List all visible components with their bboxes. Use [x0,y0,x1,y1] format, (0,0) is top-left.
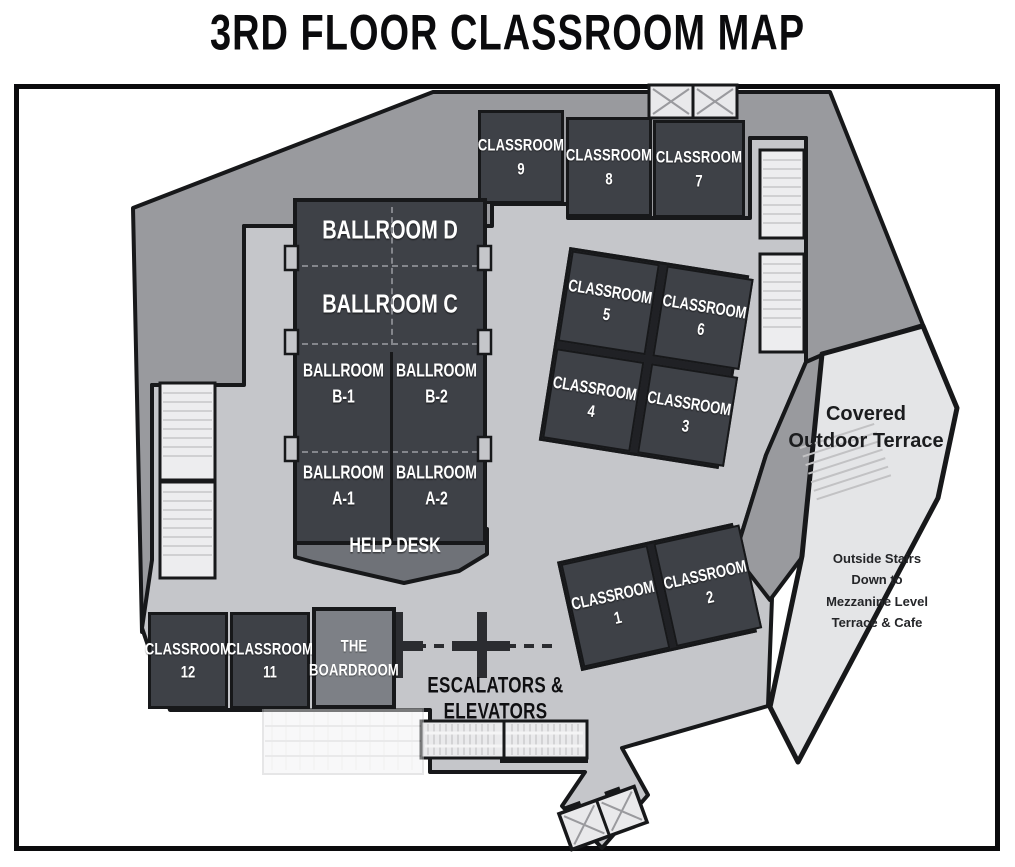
room-label: Boardroom [309,661,399,679]
outside-stairs-line2: Down to [793,569,961,590]
room-number: 1 [612,607,623,628]
ballroom-stack: Ballroom D Ballroom C Ballroom B-1 Ballr… [293,198,487,545]
room-classroom-12: Classroom 12 [148,612,228,709]
room-ballroom-a1: Ballroom A-1 [297,464,390,506]
room-number: 9 [517,159,524,179]
room-classroom-1: Classroom 1 [561,545,670,668]
room-number: A-2 [390,488,483,509]
room-label: Ballroom [297,462,390,483]
room-label: Classroom [646,387,733,419]
room-number: 11 [263,662,277,682]
room-label: Classroom [227,640,313,658]
room-number: 8 [605,169,612,189]
page-title: 3rd Floor Classroom Map [0,6,1015,49]
room-label: Ballroom [297,360,390,381]
room-label: Classroom [145,640,231,658]
help-desk-label: Help Desk [335,535,455,558]
room-classroom-6: Classroom 6 [652,265,754,369]
ballroom-divider [302,265,478,267]
room-label: Classroom [661,290,748,322]
outside-stairs-line1: Outside Stairs [793,548,961,569]
room-classroom-9: Classroom 9 [478,110,564,204]
ballroom-divider [302,343,478,345]
room-classroom-11: Classroom 11 [230,612,310,709]
room-number: 4 [586,401,596,421]
escalators-elevators-label: Escalators & Elevators [393,673,598,725]
elevator-north-icon [649,85,737,118]
page-title-text: 3rd Floor Classroom Map [210,6,805,63]
room-classroom-5: Classroom 5 [558,250,660,354]
room-number: 6 [696,319,706,339]
room-number: A-1 [297,488,390,509]
room-ballroom-b1: Ballroom B-1 [297,362,390,404]
room-boardroom: The Boardroom [312,607,396,709]
room-number: 7 [695,171,702,191]
room-number: B-2 [390,386,483,407]
room-label: Classroom [478,136,564,154]
room-label: Classroom [567,275,654,307]
room-number: B-1 [297,386,390,407]
room-classroom-8: Classroom 8 [566,117,652,217]
floor-map-page: 3rd Floor Classroom Map [0,0,1015,867]
room-number: 5 [602,304,612,324]
outside-stairs-line4: Terrace & Cafe [793,612,961,633]
room-classroom-7: Classroom 7 [653,120,745,218]
terrace-label-line1: Covered [764,401,968,428]
room-label: Classroom [566,146,652,164]
room-label: Classroom [656,148,742,166]
escalator-icon [421,721,588,763]
room-number: 3 [681,416,691,436]
room-ballroom-b2: Ballroom B-2 [390,362,483,404]
room-ballroom-c: Ballroom C [297,291,483,321]
room-label: Ballroom [390,360,483,381]
room-number: 2 [704,587,715,608]
room-ballroom-a2: Ballroom A-2 [390,464,483,506]
room-label: Ballroom [390,462,483,483]
room-number: 12 [181,662,195,682]
terrace-label: Covered Outdoor Terrace [764,401,968,455]
terrace-label-line2: Outdoor Terrace [764,428,968,455]
room-label: Classroom [552,372,639,404]
stairwell-west-icon [160,383,215,578]
room-classroom-4: Classroom 4 [542,348,644,452]
outside-stairs-line3: Mezzanine Level [793,591,961,612]
outside-stairs-label: Outside Stairs Down to Mezzanine Level T… [793,548,961,634]
classroom-block-3456: Classroom 5 Classroom 6 Classroom 4 Clas… [539,247,749,469]
room-label: The [341,637,368,655]
room-ballroom-d: Ballroom D [297,217,483,247]
room-classroom-3: Classroom 3 [637,363,739,467]
ballroom-divider [391,207,393,345]
